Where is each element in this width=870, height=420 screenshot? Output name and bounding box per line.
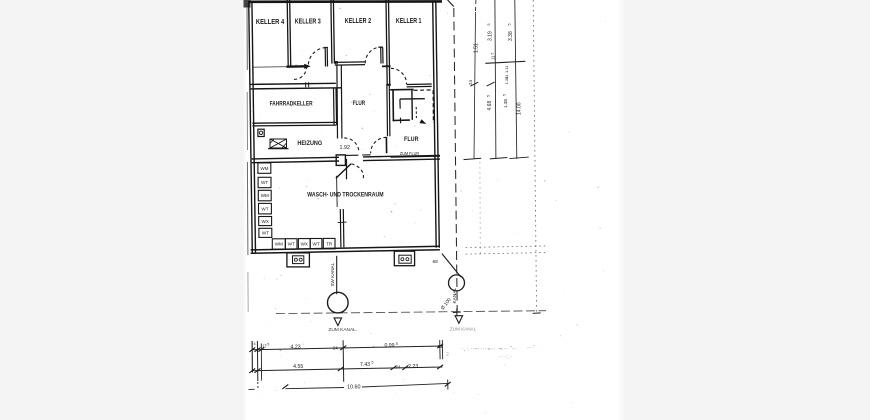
svg-text:4: 4 [254,342,256,346]
svg-text:1.92: 1.92 [340,145,351,151]
svg-text:HEIZUNG: HEIZUNG [297,140,322,147]
svg-text:2.23: 2.23 [408,364,418,370]
svg-text:5: 5 [396,342,398,346]
svg-text:WASCH- UND TROCKENRAUM: WASCH- UND TROCKENRAUM [307,192,384,199]
svg-text:0.99: 0.99 [384,343,394,349]
svg-text:–··˜·: –··˜· [527,345,537,351]
svg-text:4.68: 4.68 [487,101,493,111]
svg-text:3.19: 3.19 [487,31,493,41]
svg-text:5: 5 [486,95,490,97]
svg-text:KELLER 3: KELLER 3 [295,19,321,26]
svg-text:1.11: 1.11 [504,66,509,73]
svg-text:24: 24 [333,346,338,351]
svg-text:24: 24 [396,365,401,370]
svg-text:11: 11 [491,55,496,60]
svg-text:WM: WM [261,193,269,198]
svg-text:2·: 2· [446,352,451,358]
svg-text:WT: WT [262,231,269,236]
svg-text:5: 5 [487,24,491,26]
svg-text:1.51: 1.51 [473,43,479,53]
svg-text:10.60: 10.60 [347,384,361,390]
svg-text:ZUM KANAL.: ZUM KANAL. [328,327,357,333]
svg-text:FAHRRADKELLER: FAHRRADKELLER [270,101,313,108]
svg-text:5: 5 [503,94,507,96]
svg-text:68: 68 [433,259,439,265]
svg-text:ZUM FLUR: ZUM FLUR [400,151,420,157]
svg-text:3.38: 3.38 [508,31,514,41]
svg-text:5: 5 [268,342,270,346]
svg-text:ZUM KANAL: ZUM KANAL [450,326,477,331]
svg-text:4.23: 4.23 [291,344,301,350]
svg-text:03: 03 [437,344,442,349]
svg-text:4.55: 4.55 [293,364,303,370]
svg-text:1.38: 1.38 [504,77,509,85]
svg-text:WT: WT [261,206,268,211]
svg-text:5: 5 [490,53,494,55]
svg-text:KELLER 4: KELLER 4 [256,19,284,26]
svg-text:FLUR: FLUR [353,100,366,107]
svg-text:7.43: 7.43 [360,362,370,368]
svg-text:··· ·:.··: ··· ·:.·· [498,355,513,361]
svg-text:WX: WX [261,219,268,224]
svg-text:14.00: 14.00 [517,102,523,115]
svg-text:WT: WT [288,242,295,247]
svg-text:KELLER 2: KELLER 2 [345,18,371,25]
svg-text:TR: TR [326,241,333,246]
svg-text:24: 24 [468,80,473,85]
svg-text:·‚ ·. ··~····· ≈··· ·¬···· ˝··: ·‚ ·. ··~····· ≈··· ·¬···· ˝··· [462,347,517,353]
svg-text:WT: WT [313,241,320,246]
svg-text:WT: WT [261,180,268,185]
svg-text:SW KANAL: SW KANAL [330,262,335,286]
svg-text:5: 5 [372,361,374,365]
svg-text:KELLER 1: KELLER 1 [396,18,422,25]
svg-text:1.38: 1.38 [503,99,508,108]
svg-text:WM: WM [260,166,268,171]
svg-text:5: 5 [508,24,512,26]
svg-text:FLUR: FLUR [404,136,419,143]
svg-text:WM: WM [275,242,283,247]
svg-text:WX: WX [301,242,308,247]
